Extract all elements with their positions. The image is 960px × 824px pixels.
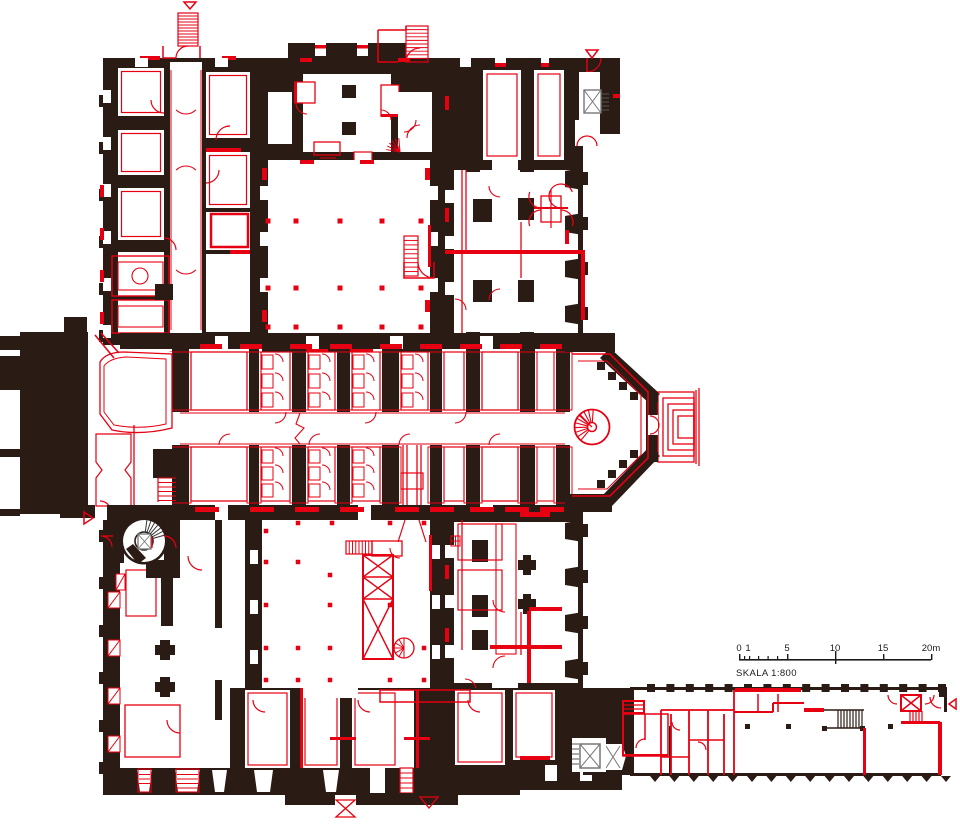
svg-text:15: 15 [878,643,889,654]
svg-text:20m: 20m [922,643,941,654]
svg-text:1: 1 [745,643,750,654]
svg-text:0: 0 [736,643,741,654]
svg-text:10: 10 [830,643,841,654]
svg-text:5: 5 [784,643,789,654]
svg-text:SKALA 1:800: SKALA 1:800 [736,668,797,679]
